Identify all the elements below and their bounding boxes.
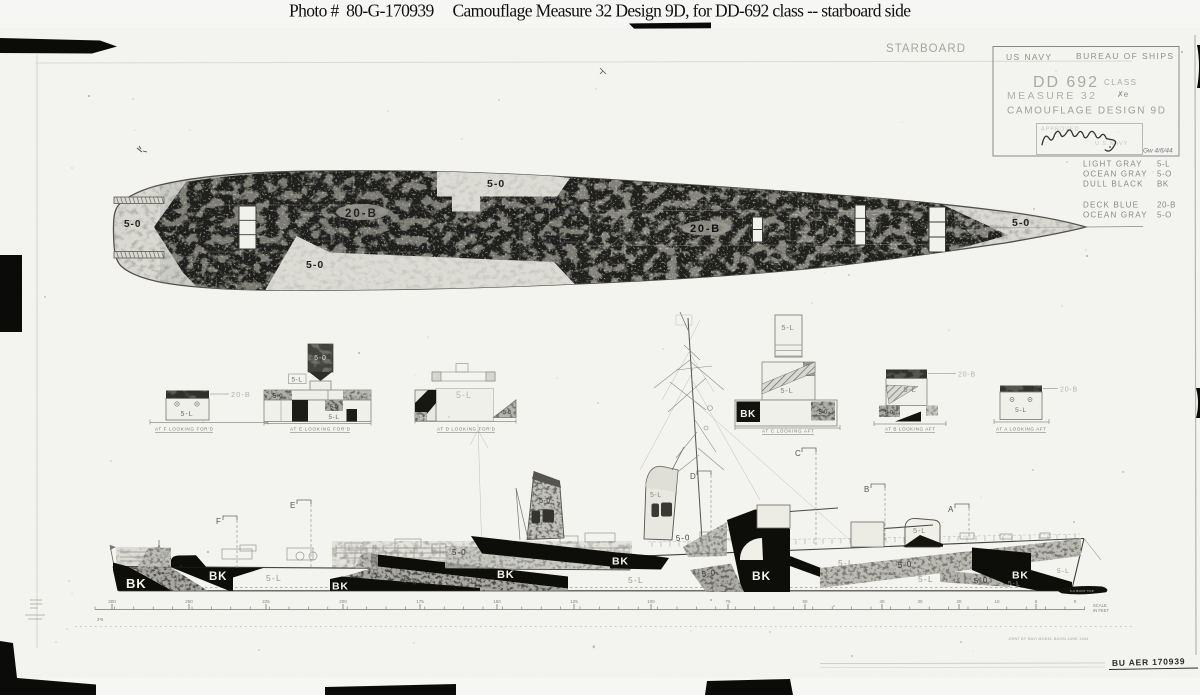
svg-text:125: 125 [570, 599, 578, 604]
svg-text:✗е: ✗е [1117, 90, 1129, 99]
svg-text:AT E LOOKING FOR'D: AT E LOOKING FOR'D [290, 427, 351, 432]
svg-text:CLASS: CLASS [1104, 78, 1137, 87]
svg-text:AT C LOOKING AFT: AT C LOOKING AFT [762, 429, 814, 434]
svg-text:AT F LOOKING FOR'D: AT F LOOKING FOR'D [155, 427, 214, 432]
svg-text:Photo # 80-G-170939 Camou: Photo # 80-G-170939 Camouflage Measure 3… [289, 1, 911, 21]
svg-text:5-0: 5-0 [314, 355, 327, 362]
svg-text:50: 50 [802, 599, 808, 604]
svg-text:5-L: 5-L [372, 544, 388, 554]
svg-text:5-0: 5-0 [306, 259, 324, 271]
svg-text:5-L: 5-L [292, 377, 303, 384]
svg-text:D: D [690, 472, 696, 481]
svg-text:B: B [864, 485, 870, 494]
svg-text:5-L: 5-L [903, 385, 916, 394]
svg-text:200: 200 [339, 599, 347, 604]
svg-text:20-B: 20-B [958, 372, 976, 379]
svg-text:5-L: 5-L [1015, 407, 1027, 414]
svg-text:AT D LOOKING FOR'D: AT D LOOKING FOR'D [437, 427, 496, 432]
svg-text:5-L: 5-L [180, 411, 193, 418]
svg-text:5-L: 5-L [838, 558, 854, 568]
svg-text:E: E [290, 501, 296, 510]
svg-text:F: F [216, 517, 221, 526]
svg-text:5-0: 5-0 [487, 178, 505, 190]
svg-text:BU AER 170939: BU AER 170939 [1112, 656, 1186, 668]
svg-text:5-0: 5-0 [885, 410, 893, 416]
svg-text:BK: BK [612, 556, 629, 568]
svg-text:20: 20 [956, 599, 962, 604]
svg-text:5-0: 5-0 [452, 548, 467, 557]
svg-text:20-B: 20-B [1060, 387, 1078, 394]
svg-text:STARBOARD: STARBOARD [886, 43, 968, 55]
svg-text:40: 40 [879, 599, 885, 604]
svg-text:5-0: 5-0 [539, 498, 551, 505]
svg-text:150: 150 [493, 599, 501, 604]
svg-text:×: × [592, 645, 596, 651]
svg-text:APPROVED: APPROVED [1041, 127, 1080, 133]
svg-text:5-L: 5-L [1157, 160, 1170, 169]
svg-text:5-0: 5-0 [503, 410, 511, 416]
svg-text:5-L: 5-L [628, 575, 644, 585]
svg-text:5-O: 5-O [1157, 170, 1172, 179]
svg-text:5-0 BOOT TOP: 5-0 BOOT TOP [1070, 589, 1094, 593]
svg-text:5-O: 5-O [1157, 211, 1172, 220]
svg-text:BK: BK [1157, 180, 1169, 189]
svg-text:BK: BK [209, 571, 227, 583]
svg-text:BK: BK [497, 569, 515, 581]
svg-text:DULL BLACK: DULL BLACK [1083, 180, 1144, 189]
svg-text:DECK BLUE: DECK BLUE [1083, 201, 1139, 210]
svg-text:5-L: 5-L [1017, 544, 1033, 554]
svg-text:5-0: 5-0 [124, 219, 141, 230]
svg-text:5-L: 5-L [780, 386, 793, 395]
svg-text:LIGHT GRAY: LIGHT GRAY [1083, 160, 1143, 169]
svg-text:JOINT BY NAVI MODEL BASIN JUNE: JOINT BY NAVI MODEL BASIN JUNE 1944 [1008, 637, 1088, 641]
svg-text:175: 175 [416, 599, 424, 604]
svg-text:US NAVY: US NAVY [1006, 52, 1053, 62]
svg-text:BK: BK [752, 569, 771, 583]
svg-text:5-L: 5-L [918, 574, 934, 584]
svg-text:A: A [948, 505, 954, 514]
svg-text:5-0: 5-0 [273, 394, 283, 400]
svg-text:5-L: 5-L [1057, 568, 1070, 575]
svg-text:5-0: 5-0 [1012, 217, 1030, 229]
svg-text:20-B: 20-B [690, 223, 721, 235]
svg-text:5-L: 5-L [650, 492, 662, 499]
svg-text:100: 100 [647, 599, 655, 604]
svg-text:5-0: 5-0 [897, 560, 912, 570]
svg-text:5-0: 5-0 [420, 415, 428, 421]
svg-text:3*6: 3*6 [97, 617, 104, 622]
svg-text:C: C [795, 449, 801, 458]
svg-text:CAMOUFLAGE DESIGN 9D: CAMOUFLAGE DESIGN 9D [1007, 106, 1165, 117]
svg-text:5-0: 5-0 [974, 576, 989, 586]
svg-text:AT B LOOKING AFT: AT B LOOKING AFT [885, 427, 935, 432]
svg-text:MEASURE 32: MEASURE 32 [1007, 90, 1095, 102]
svg-text:75: 75 [725, 599, 731, 604]
svg-text:300: 300 [108, 599, 116, 604]
svg-text:BUREAU OF SHIPS: BUREAU OF SHIPS [1076, 51, 1174, 61]
svg-text:U.S.NAVY: U.S.NAVY [1095, 141, 1128, 147]
svg-text:5-L: 5-L [329, 414, 340, 421]
svg-text:5-0: 5-0 [819, 410, 828, 416]
svg-text:5-L: 5-L [781, 323, 794, 332]
svg-text:20-B: 20-B [1157, 201, 1176, 210]
svg-text:5-L: 5-L [266, 573, 282, 583]
svg-text:BK: BK [126, 576, 146, 591]
svg-text:5-L: 5-L [456, 390, 472, 400]
svg-text:10: 10 [994, 599, 1000, 604]
svg-text:5-0: 5-0 [403, 576, 418, 586]
svg-text:20-B: 20-B [231, 390, 251, 399]
svg-text:225: 225 [262, 599, 270, 604]
svg-text:20-B: 20-B [345, 208, 378, 220]
svg-text:OCEAN GRAY: OCEAN GRAY [1083, 170, 1148, 179]
svg-text:5-L: 5-L [1008, 581, 1021, 588]
svg-text:IN FEET: IN FEET [1093, 608, 1109, 613]
svg-text:250: 250 [185, 599, 193, 604]
svg-text:5-0: 5-0 [330, 405, 338, 411]
svg-text:BK: BK [332, 581, 349, 593]
svg-text:AT A LOOKING AFT: AT A LOOKING AFT [996, 427, 1046, 432]
svg-text:BK: BK [740, 409, 756, 420]
svg-text:30: 30 [917, 599, 923, 604]
svg-text:OCEAN GRAY: OCEAN GRAY [1083, 211, 1148, 220]
svg-text:5-L: 5-L [913, 526, 926, 535]
svg-text:Gw 4/6/44: Gw 4/6/44 [1143, 148, 1173, 155]
svg-text:5-0: 5-0 [676, 533, 691, 543]
